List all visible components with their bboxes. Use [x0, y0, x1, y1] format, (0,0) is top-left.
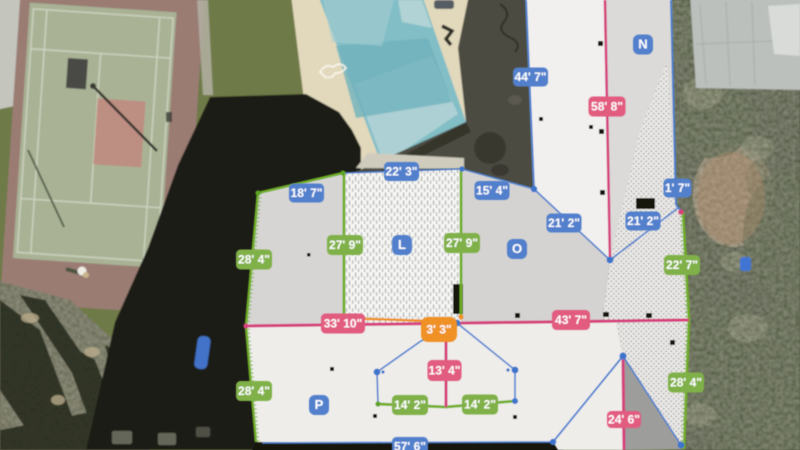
svg-text:44' 7": 44' 7" [515, 70, 547, 84]
svg-text:15' 4": 15' 4" [476, 184, 508, 198]
svg-text:22' 3": 22' 3" [386, 165, 418, 179]
svg-text:57' 6": 57' 6" [394, 440, 426, 450]
svg-text:21' 2": 21' 2" [627, 214, 659, 228]
svg-text:33' 10": 33' 10" [324, 317, 363, 331]
svg-text:28' 4": 28' 4" [238, 253, 270, 267]
svg-text:14' 2": 14' 2" [464, 398, 496, 412]
svg-text:28' 4": 28' 4" [238, 384, 270, 398]
svg-text:58' 8": 58' 8" [591, 100, 623, 114]
svg-text:24' 6": 24' 6" [608, 413, 640, 427]
svg-text:1' 7": 1' 7" [665, 181, 690, 195]
svg-text:L: L [398, 237, 406, 252]
svg-text:P: P [315, 397, 324, 412]
svg-text:43' 7": 43' 7" [555, 313, 587, 327]
svg-text:13' 4": 13' 4" [429, 364, 461, 378]
svg-text:27' 9": 27' 9" [329, 238, 361, 252]
svg-text:O: O [512, 241, 522, 256]
svg-text:18' 7": 18' 7" [291, 186, 323, 200]
svg-text:21' 2": 21' 2" [548, 216, 580, 230]
svg-text:28' 4": 28' 4" [670, 376, 702, 390]
svg-text:22' 7": 22' 7" [666, 258, 698, 272]
svg-text:27' 9": 27' 9" [446, 236, 478, 250]
svg-text:3' 3": 3' 3" [426, 323, 451, 337]
svg-text:14' 2": 14' 2" [394, 398, 426, 412]
svg-text:N: N [638, 37, 647, 52]
